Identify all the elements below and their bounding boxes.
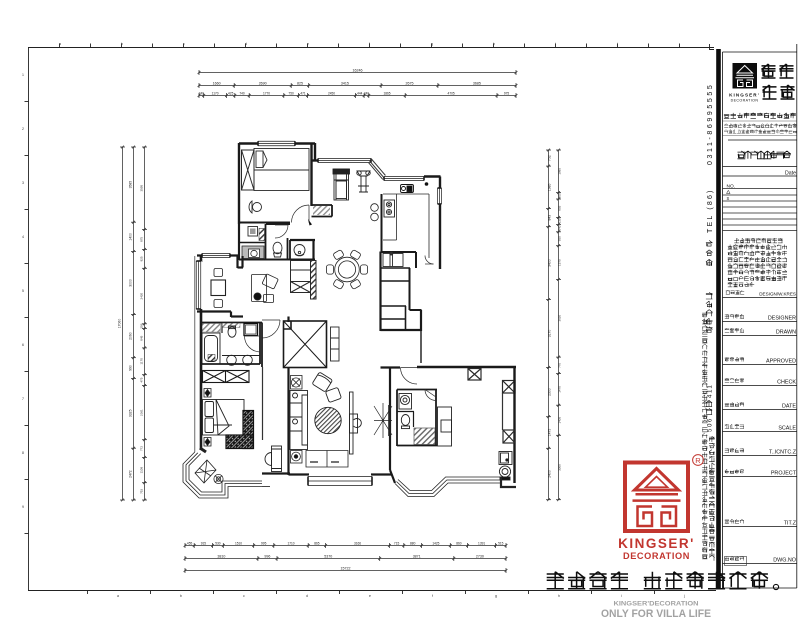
svg-text:c: c	[183, 42, 185, 46]
svg-text:T..ICNTC.Z: T..ICNTC.Z	[769, 450, 797, 456]
svg-text:DESIGN/W.KRES: DESIGN/W.KRES	[759, 292, 796, 297]
svg-text:a: a	[117, 594, 119, 598]
svg-text:411: 411	[707, 384, 714, 398]
svg-text:2675: 2675	[406, 81, 414, 85]
svg-text:2472: 2472	[128, 470, 132, 478]
svg-text:TEL (86): TEL (86)	[707, 188, 714, 233]
svg-text:3400: 3400	[548, 259, 552, 267]
svg-text:2730: 2730	[476, 554, 484, 558]
svg-text:845: 845	[139, 335, 143, 340]
svg-text:2450: 2450	[328, 91, 335, 95]
svg-text:e: e	[307, 42, 309, 46]
svg-text:3685: 3685	[473, 81, 481, 85]
svg-text:1470: 1470	[558, 386, 562, 393]
svg-text:515: 515	[498, 541, 504, 545]
svg-text:1400: 1400	[128, 233, 132, 241]
svg-text:1510: 1510	[235, 541, 242, 545]
svg-text:1391: 1391	[478, 541, 485, 545]
svg-text:g: g	[431, 42, 433, 46]
svg-text:f: f	[432, 594, 433, 598]
svg-text:1570: 1570	[558, 259, 562, 266]
svg-text:16246: 16246	[353, 68, 363, 72]
svg-text:1170: 1170	[212, 91, 219, 95]
svg-text:750: 750	[288, 91, 294, 95]
svg-text:990: 990	[128, 365, 132, 371]
svg-text:975: 975	[504, 91, 510, 95]
svg-text:860: 860	[456, 541, 462, 545]
svg-text:8: 8	[22, 451, 24, 455]
svg-text:340: 340	[558, 225, 562, 230]
svg-text:300: 300	[558, 193, 562, 198]
svg-text:1: 1	[22, 73, 24, 77]
svg-text:2420: 2420	[139, 292, 143, 299]
svg-text:3871: 3871	[413, 554, 421, 558]
svg-text:915: 915	[201, 541, 207, 545]
svg-text:1170: 1170	[139, 358, 143, 365]
svg-text:f: f	[369, 42, 370, 46]
svg-text:825: 825	[139, 256, 143, 261]
svg-text:b: b	[121, 42, 123, 46]
svg-text:880: 880	[410, 541, 416, 545]
svg-text:740: 740	[239, 91, 245, 95]
svg-text:TIT.Z: TIT.Z	[784, 521, 797, 527]
svg-text:2: 2	[22, 127, 24, 131]
svg-text:3620: 3620	[558, 315, 562, 322]
svg-text:506: 506	[707, 417, 714, 432]
svg-text:240: 240	[199, 91, 205, 95]
svg-text:2361: 2361	[139, 409, 143, 416]
svg-text:2690: 2690	[259, 81, 267, 85]
svg-text:425: 425	[228, 91, 234, 95]
svg-text:3585: 3585	[128, 181, 132, 189]
svg-text:7: 7	[22, 397, 24, 401]
svg-text:455: 455	[187, 541, 193, 545]
svg-text:3166: 3166	[354, 541, 361, 545]
svg-text:S: S	[727, 196, 730, 201]
svg-text:3415: 3415	[341, 81, 349, 85]
svg-text:875: 875	[139, 237, 143, 242]
svg-text:475: 475	[139, 377, 143, 382]
svg-text:PROJECT: PROJECT	[771, 471, 797, 477]
svg-text:3000: 3000	[558, 464, 562, 471]
svg-text:2300: 2300	[548, 388, 552, 396]
svg-text:h: h	[558, 594, 560, 598]
svg-text:DESIGNER: DESIGNER	[768, 316, 796, 322]
svg-text:1985: 1985	[548, 184, 552, 192]
svg-text:e: e	[369, 594, 371, 598]
svg-text:1660: 1660	[213, 81, 221, 85]
svg-text:996: 996	[264, 554, 270, 558]
svg-text:3595: 3595	[139, 185, 143, 192]
svg-text:1108: 1108	[139, 467, 143, 474]
svg-text:3170: 3170	[548, 330, 552, 338]
svg-text:2060: 2060	[128, 332, 132, 340]
svg-text:ONLY FOR VILLA LIFE: ONLY FOR VILLA LIFE	[601, 608, 711, 620]
svg-text:17060: 17060	[117, 319, 121, 329]
svg-text:g: g	[495, 594, 497, 598]
svg-text:650: 650	[558, 236, 562, 241]
svg-text:DATE: DATE	[782, 404, 796, 410]
svg-text:1770: 1770	[263, 91, 270, 95]
svg-text:R: R	[695, 456, 701, 465]
svg-text:3000: 3000	[128, 279, 132, 287]
svg-text:6: 6	[22, 343, 24, 347]
svg-text:KINGSER': KINGSER'	[618, 536, 695, 551]
svg-text:0311-86995555: 0311-86995555	[707, 83, 714, 165]
svg-text:995: 995	[261, 541, 267, 545]
svg-text:j: j	[683, 594, 685, 598]
svg-text:KINGSER'DECORATION: KINGSER'DECORATION	[614, 601, 699, 608]
svg-text:1475: 1475	[548, 429, 552, 437]
svg-text:d: d	[306, 594, 308, 598]
svg-text:3: 3	[22, 181, 24, 185]
svg-text:1710: 1710	[287, 541, 294, 545]
svg-text:1865: 1865	[383, 91, 390, 95]
svg-text:240: 240	[364, 91, 370, 95]
svg-text:772: 772	[139, 446, 143, 451]
svg-text:843: 843	[548, 215, 552, 221]
svg-text:j: j	[616, 42, 618, 46]
svg-text:753: 753	[139, 489, 143, 494]
svg-text:Date: Date	[785, 171, 796, 177]
svg-text:3325: 3325	[128, 409, 132, 417]
svg-text:d: d	[245, 42, 247, 46]
svg-text:c: c	[243, 594, 245, 598]
svg-text:865: 865	[314, 541, 320, 545]
svg-text:KINGSER': KINGSER'	[729, 93, 760, 98]
svg-text:3810: 3810	[217, 554, 225, 558]
svg-text:15722: 15722	[341, 566, 351, 570]
svg-text:206: 206	[139, 323, 143, 328]
svg-text:752: 752	[548, 155, 552, 161]
svg-text:530: 530	[215, 541, 221, 545]
svg-text:CHECK: CHECK	[777, 380, 796, 386]
svg-text:2400: 2400	[548, 470, 552, 478]
svg-text:5: 5	[22, 289, 24, 293]
svg-text:9: 9	[22, 505, 24, 509]
svg-text:330: 330	[558, 218, 562, 223]
svg-text:855: 855	[558, 205, 562, 210]
svg-text:a: a	[59, 42, 61, 46]
svg-text:DECORATION: DECORATION	[731, 99, 759, 103]
svg-text:APPROVED: APPROVED	[766, 359, 796, 365]
svg-text:444: 444	[357, 91, 363, 95]
svg-text:825: 825	[297, 81, 303, 85]
svg-text:471: 471	[300, 91, 306, 95]
svg-text:715: 715	[394, 541, 400, 545]
svg-text:4705: 4705	[448, 91, 455, 95]
svg-text:5370: 5370	[324, 554, 332, 558]
svg-text:1425: 1425	[432, 541, 439, 545]
svg-text:SCALE: SCALE	[778, 426, 796, 432]
svg-text:770: 770	[558, 363, 562, 368]
svg-text:b: b	[180, 594, 182, 598]
svg-text:1985: 1985	[558, 168, 562, 175]
svg-text:4: 4	[22, 235, 24, 239]
svg-text:DRAWN: DRAWN	[776, 330, 796, 336]
svg-text:DWG.NO: DWG.NO	[773, 558, 796, 564]
svg-text:DECORATION: DECORATION	[623, 551, 690, 561]
svg-text:h: h	[493, 42, 495, 46]
svg-text:1405: 1405	[558, 417, 562, 424]
